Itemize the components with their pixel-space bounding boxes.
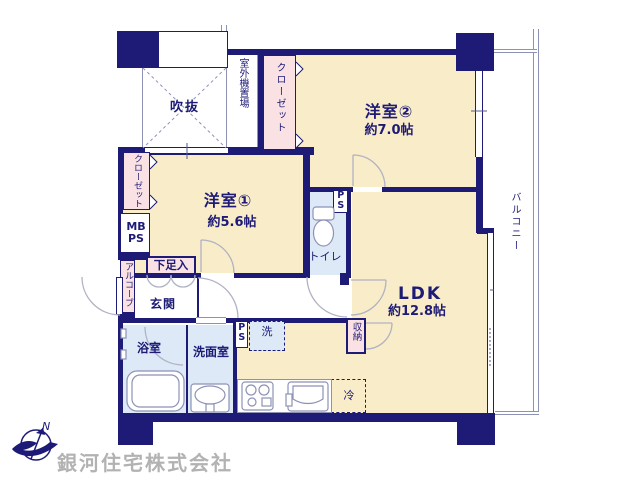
ldk-area: 約12.8帖 (388, 305, 446, 319)
bird-silhouette-icon (12, 441, 58, 456)
front-door-leaf (116, 277, 123, 315)
alcove-label: アルコーブ (123, 262, 132, 307)
wall-western2-south-right (382, 187, 483, 192)
balcony-top-line (494, 49, 537, 53)
window-western2-east (475, 71, 483, 157)
western2-label: 洋室② (365, 103, 414, 121)
western2-area: 約7.0帖 (364, 124, 413, 138)
mbps-label: MB PS (124, 221, 148, 244)
window-ldk-east (487, 233, 494, 413)
void-top-box (158, 31, 228, 68)
closet-top-label: クローゼット (274, 62, 284, 134)
closet-left-label: クローゼット (132, 154, 141, 208)
ps-toilet-label: PS (336, 191, 346, 211)
ps-hallway-label: PS (237, 323, 247, 343)
bathroom-label: 浴室 (137, 342, 161, 355)
wall-left-lower (118, 318, 123, 415)
western1-area: 約5.6帖 (207, 216, 256, 230)
door-corridor (198, 278, 238, 318)
balcony-railing (533, 29, 539, 415)
floor-plan: 吹抜 室外機置場 クローゼット クローゼット MB PS アルコーブ 下足入 玄… (0, 0, 640, 480)
company-name: 銀河住宅株式会社 (57, 447, 233, 476)
kitchen-counter (237, 379, 332, 413)
washroom-label: 洗面室 (193, 346, 229, 359)
wall-right-mid (476, 155, 483, 233)
toilet-label: トイレ (309, 251, 342, 263)
entrance-label: 玄関 (150, 298, 176, 311)
pillar-top-left (117, 31, 158, 68)
washroom-door-opening (196, 317, 226, 324)
western1-label: 洋室① (204, 192, 253, 210)
washroom-floor (188, 325, 233, 413)
room-western2-floor (296, 55, 477, 187)
storage-label: 収納 (351, 322, 361, 341)
void-label: 吹抜 (170, 101, 200, 115)
outdoor-unit-label: 室外機置場 (237, 58, 247, 108)
window-western1-north (145, 147, 228, 154)
north-label: N (42, 421, 50, 433)
bathroom-floor (123, 325, 186, 413)
door-front (82, 277, 120, 315)
wall-entrance-step (197, 278, 199, 318)
balcony-label: バルコニー (509, 192, 519, 252)
ldk-label: LDK (398, 285, 442, 304)
fridge-label: 冷 (344, 390, 355, 402)
wall-bath-divider (186, 325, 188, 413)
wall-bottom (118, 413, 495, 422)
balcony-bottom-line (495, 411, 539, 415)
washer-label: 洗 (262, 326, 273, 338)
shoe-cabinet-label: 下足入 (154, 259, 189, 272)
wall-western1-south-right (234, 273, 310, 278)
north-compass-logo (12, 428, 58, 460)
